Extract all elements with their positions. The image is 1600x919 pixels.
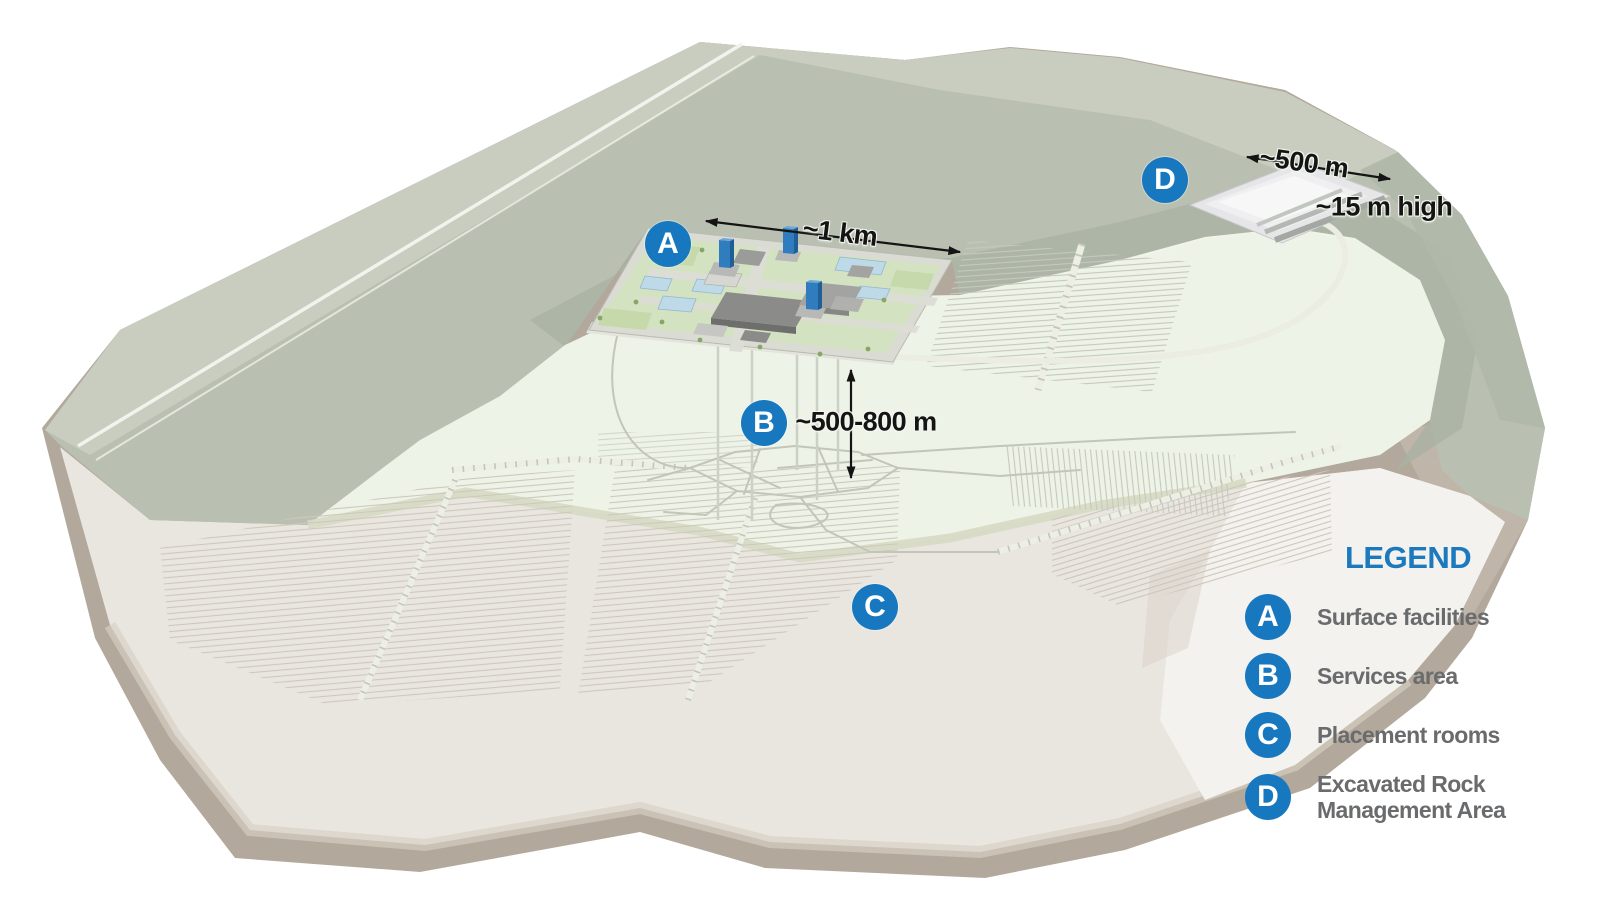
dimension-depth-label: ~500-800 m — [795, 407, 936, 438]
legend-badge-b: B — [1245, 653, 1291, 699]
legend-label-placement-rooms: Placement rooms — [1317, 722, 1500, 748]
map-marker-c: C — [852, 584, 898, 630]
map-marker-a-letter: A — [657, 227, 679, 261]
legend-label-surface-facilities: Surface facilities — [1317, 604, 1489, 630]
map-marker-d-letter: D — [1154, 163, 1176, 197]
map-marker-a: A — [645, 221, 691, 267]
dimension-height-label: ~15 m high — [1316, 192, 1453, 223]
legend-title: LEGEND — [1345, 540, 1575, 576]
legend: LEGEND A Surface facilities B Services a… — [1245, 540, 1575, 836]
legend-badge-d-letter: D — [1257, 780, 1279, 814]
map-marker-d: D — [1142, 157, 1188, 203]
legend-badge-c-letter: C — [1257, 718, 1279, 752]
legend-label-rock-management-area: Excavated Rock Management Area — [1317, 771, 1505, 823]
map-marker-b-letter: B — [753, 406, 775, 440]
legend-badge-a: A — [1245, 594, 1291, 640]
legend-badge-d: D — [1245, 774, 1291, 820]
legend-badge-b-letter: B — [1257, 659, 1279, 693]
repository-cutaway-diagram: ~1 km ~500-800 m ~500 m ~15 m high A B C… — [0, 0, 1600, 919]
legend-item-placement-rooms: C Placement rooms — [1245, 712, 1575, 758]
legend-label-services-area: Services area — [1317, 663, 1458, 689]
map-marker-c-letter: C — [864, 590, 886, 624]
legend-item-services-area: B Services area — [1245, 653, 1575, 699]
legend-badge-c: C — [1245, 712, 1291, 758]
legend-item-surface-facilities: A Surface facilities — [1245, 594, 1575, 640]
legend-badge-a-letter: A — [1257, 600, 1279, 634]
map-marker-b: B — [741, 400, 787, 446]
legend-item-rock-management-area: D Excavated Rock Management Area — [1245, 771, 1575, 823]
